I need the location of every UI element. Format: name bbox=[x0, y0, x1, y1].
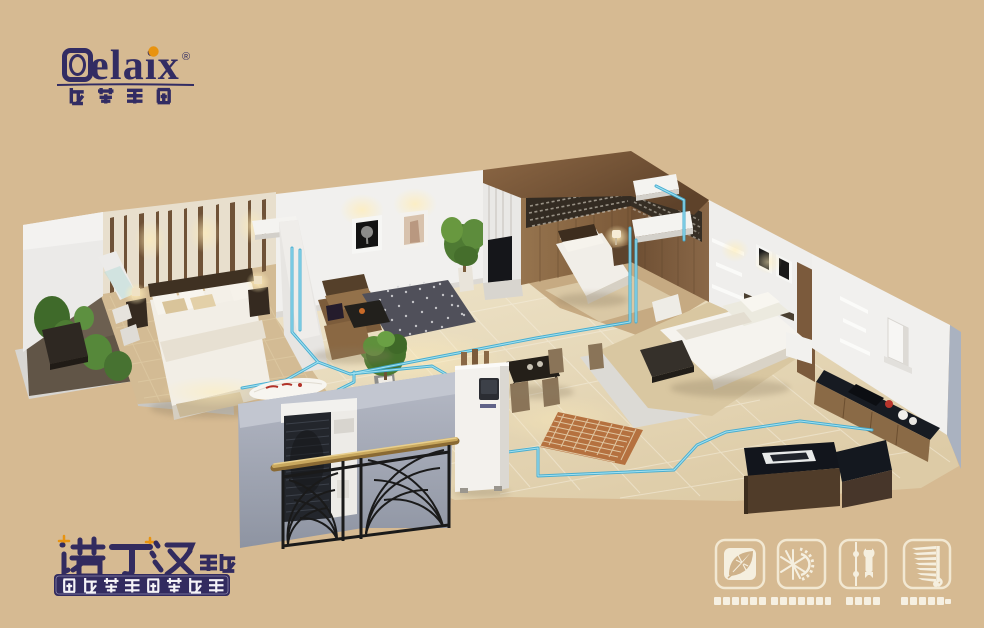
svg-text:®: ® bbox=[182, 51, 190, 63]
svg-text:elaix: elaix bbox=[90, 43, 180, 89]
